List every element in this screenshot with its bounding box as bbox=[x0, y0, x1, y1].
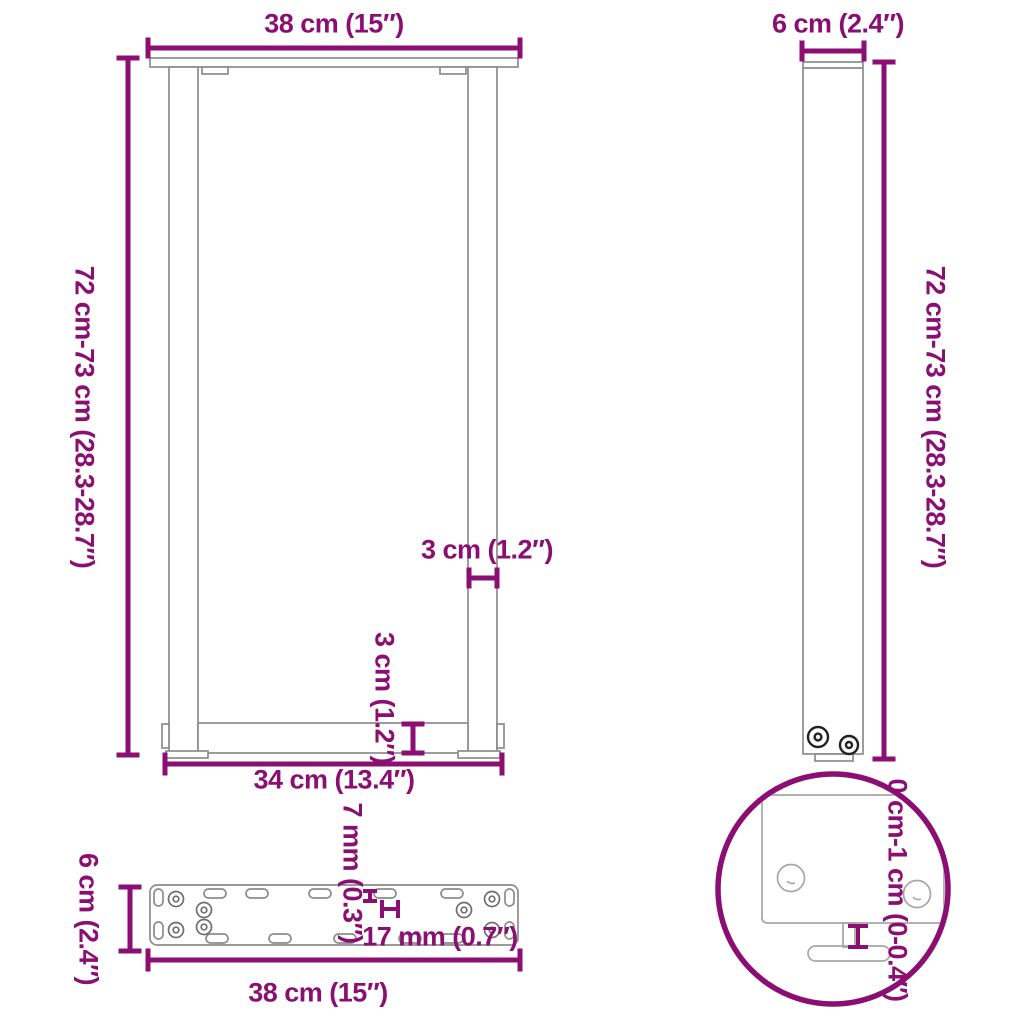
plate-slot bbox=[246, 889, 268, 898]
screw-hole-icon bbox=[489, 896, 495, 902]
diagram-linework bbox=[0, 0, 1024, 1024]
plate-depth-label: 6 cm (2.4″) bbox=[75, 853, 102, 985]
detail-adjustment-range-label: 0 cm-1 cm (0-0.4″) bbox=[884, 778, 911, 1001]
plate-slot bbox=[269, 934, 291, 943]
front-right-foot bbox=[458, 751, 500, 758]
side-depth-label: 6 cm (2.4″) bbox=[772, 11, 904, 38]
front-left-leg bbox=[169, 67, 198, 754]
front-height-label: 72 cm-73 cm (28.3-28.7″) bbox=[71, 266, 98, 569]
plate-slot bbox=[309, 889, 331, 898]
plate-slot bbox=[206, 934, 228, 943]
plate-slot bbox=[204, 889, 226, 898]
front-right-side-tab bbox=[497, 724, 504, 748]
plate-slot bbox=[154, 922, 163, 939]
front-left-tab bbox=[202, 67, 228, 74]
front-right-tab bbox=[440, 67, 466, 74]
front-left-side-tab bbox=[162, 724, 169, 748]
plate-slot bbox=[505, 889, 514, 906]
front-bottom-width-label: 34 cm (13.4″) bbox=[253, 767, 414, 794]
screw-hole-icon bbox=[201, 907, 207, 913]
front-left-foot bbox=[166, 751, 208, 758]
side-height-label: 72 cm-73 cm (28.3-28.7″) bbox=[922, 266, 949, 569]
screw-hole-icon bbox=[201, 924, 207, 930]
front-top-width-label: 38 cm (15″) bbox=[264, 11, 404, 38]
plate-slot bbox=[374, 889, 396, 898]
detail-magnifier-circle bbox=[718, 774, 948, 1004]
side-view-drawing bbox=[803, 62, 863, 761]
front-crossbar bbox=[198, 723, 468, 753]
screw-icon bbox=[815, 734, 822, 741]
front-crossbar-height-label: 3 cm (1.2″) bbox=[371, 632, 398, 764]
front-right-leg bbox=[468, 67, 497, 754]
screw-hole-icon bbox=[173, 927, 179, 933]
screw-hole-icon bbox=[461, 907, 467, 913]
plate-slot bbox=[154, 889, 163, 906]
front-view-drawing bbox=[150, 58, 518, 758]
plate-width-label: 38 cm (15″) bbox=[248, 980, 388, 1007]
screw-hole-icon bbox=[173, 896, 179, 902]
dimension-diagram: 38 cm (15″) 72 cm-73 cm (28.3-28.7″) 3 c… bbox=[0, 0, 1024, 1024]
plate-hole-size-label: 17 mm (0.7″) bbox=[362, 924, 518, 951]
front-top-plate bbox=[150, 58, 518, 67]
side-leg-body bbox=[803, 62, 863, 754]
screw-icon bbox=[846, 742, 852, 748]
front-profile-width-label: 3 cm (1.2″) bbox=[421, 537, 553, 564]
plate-slot bbox=[441, 889, 463, 898]
